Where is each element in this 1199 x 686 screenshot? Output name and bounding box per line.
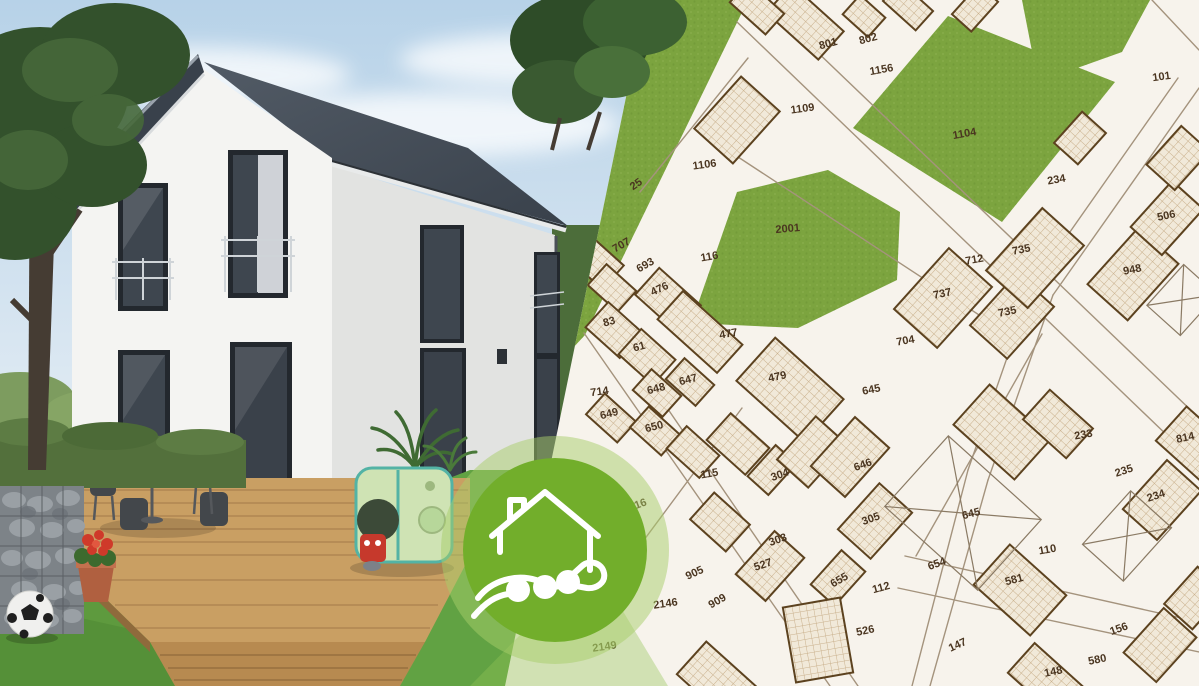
hero-composite: 8018021156101110911041106252342001707693…	[0, 0, 1199, 686]
tree-right-foliage	[510, 0, 687, 150]
badge-circle	[463, 458, 647, 642]
house-care-badge	[430, 430, 680, 686]
